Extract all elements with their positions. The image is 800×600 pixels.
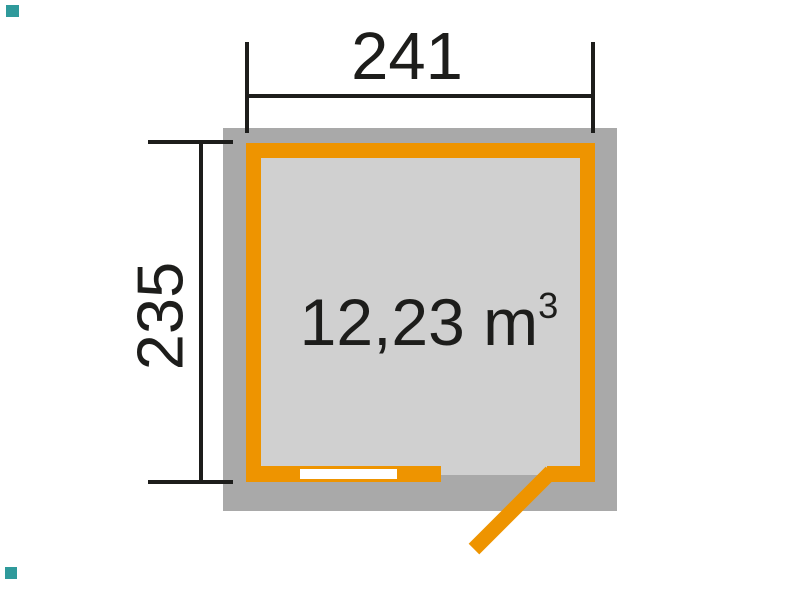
floor-plan-drawing: 241 235 12,23 m3: [0, 0, 800, 600]
width-extension-line-left: [245, 42, 249, 133]
height-tick-bottom: [148, 480, 233, 484]
door-opening: [441, 466, 547, 475]
volume-value: 12,23 m: [300, 285, 538, 359]
width-dimension-label: 241: [351, 23, 463, 90]
width-dimension-line: [245, 94, 595, 98]
height-dimension-label: 235: [128, 262, 193, 370]
volume-label: 12,23 m3: [300, 289, 559, 355]
teal-corner-marker-bottom-icon: [5, 567, 17, 579]
width-extension-line-right: [591, 42, 595, 133]
teal-corner-marker-top-icon: [6, 5, 19, 17]
height-tick-top: [148, 140, 233, 144]
volume-superscript: 3: [538, 285, 558, 326]
window-marker: [300, 469, 397, 479]
height-dimension-line: [199, 141, 203, 484]
